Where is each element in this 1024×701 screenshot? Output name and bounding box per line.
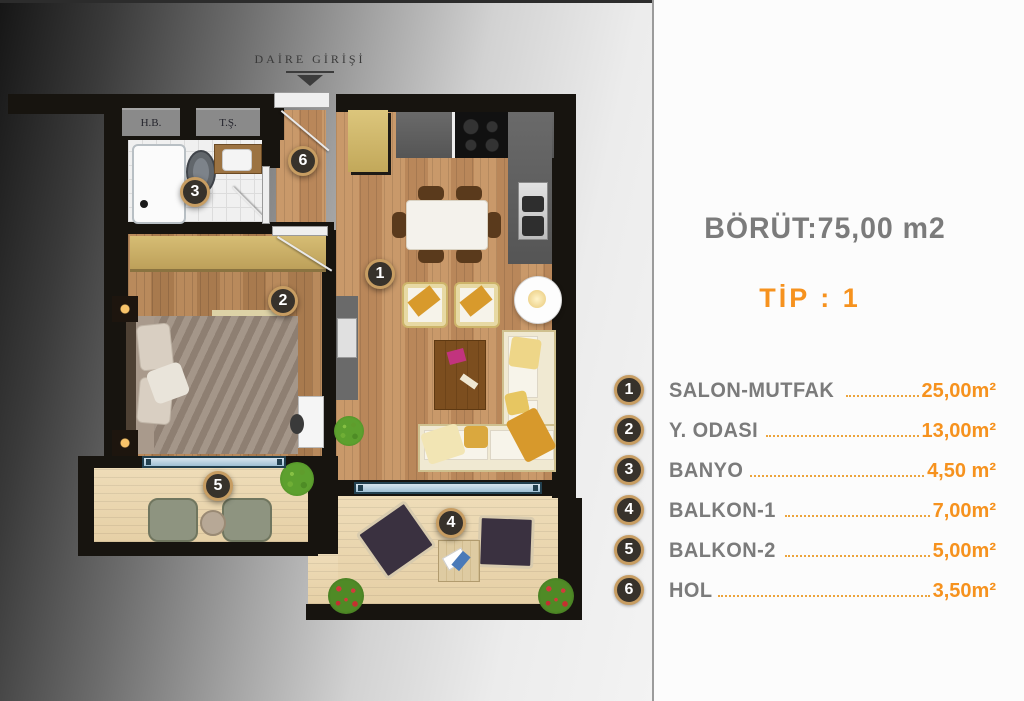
entrance-door-leaf bbox=[274, 92, 330, 108]
cooktop bbox=[452, 112, 508, 158]
legend-row: 4 BALKON-1 7,00m² bbox=[614, 490, 996, 530]
legend-label: HOL bbox=[669, 579, 713, 610]
legend-marker-2: 2 bbox=[614, 415, 644, 445]
dot-leader bbox=[846, 395, 919, 397]
wall bbox=[8, 94, 108, 114]
entrance-arrow-icon bbox=[297, 75, 323, 86]
marker-yatak-odasi: 2 bbox=[268, 286, 298, 316]
balcony-armchair bbox=[477, 515, 535, 569]
marker-balkon2: 5 bbox=[203, 471, 233, 501]
room-legend: 1 SALON-MUTFAK 25,00m² 2 Y. ODASI 13,00m… bbox=[614, 370, 996, 610]
flower-plant bbox=[328, 578, 364, 614]
legend-row: 1 SALON-MUTFAK 25,00m² bbox=[614, 370, 996, 410]
floorplan-page: DAİRE GİRİŞİ H.B. T.Ş. bbox=[0, 0, 1024, 701]
legend-area: 5,00m² bbox=[933, 540, 996, 570]
dot-leader bbox=[766, 435, 919, 437]
bedroom-door-leaf bbox=[272, 226, 328, 236]
balcony2-deck bbox=[94, 468, 308, 542]
balcony-chair bbox=[148, 498, 198, 542]
dining-chair bbox=[456, 186, 482, 201]
legend-marker-6: 6 bbox=[614, 575, 644, 605]
legend-row: 2 Y. ODASI 13,00m² bbox=[614, 410, 996, 450]
marker-banyo: 3 bbox=[180, 177, 210, 207]
nightstand bbox=[112, 430, 138, 456]
legend-marker-5: 5 bbox=[614, 535, 644, 565]
shower-tray bbox=[132, 144, 186, 224]
dining-chair bbox=[418, 186, 444, 201]
legend-row: 3 BANYO 4,50 m² bbox=[614, 450, 996, 490]
desk-chair bbox=[290, 414, 304, 434]
dot-leader bbox=[750, 475, 924, 477]
shaft-ts-label: T.Ş. bbox=[196, 108, 260, 136]
legend-area: 25,00m² bbox=[922, 380, 997, 410]
legend-label: Y. ODASI bbox=[669, 419, 758, 450]
bathroom-door-leaf bbox=[262, 166, 270, 224]
type-subtitle: TİP : 1 bbox=[660, 283, 960, 314]
dining-chair bbox=[418, 248, 444, 263]
balcony-side-table bbox=[200, 510, 226, 536]
sofa-stool bbox=[464, 426, 488, 448]
legend-area: 4,50 m² bbox=[927, 460, 996, 490]
wall bbox=[78, 542, 318, 556]
entrance-label: DAİRE GİRİŞİ bbox=[230, 52, 390, 67]
fridge bbox=[337, 318, 357, 358]
legend-area: 13,00m² bbox=[922, 420, 997, 450]
legend-label: BALKON-2 bbox=[669, 539, 776, 570]
legend-label: BANYO bbox=[669, 459, 743, 490]
legend-label: BALKON-1 bbox=[669, 499, 776, 530]
shower-drain bbox=[140, 200, 148, 208]
legend-row: 6 HOL 3,50m² bbox=[614, 570, 996, 610]
lamp-glow bbox=[528, 290, 546, 308]
hall-wardrobe bbox=[348, 110, 388, 172]
balcony-chair bbox=[222, 498, 272, 542]
sink-bowl-2 bbox=[522, 216, 544, 236]
legend-marker-3: 3 bbox=[614, 455, 644, 485]
livingroom-window bbox=[354, 482, 542, 494]
shaft-hb-label: H.B. bbox=[122, 108, 180, 136]
wall bbox=[78, 456, 94, 556]
plant bbox=[334, 416, 364, 446]
legend-label: SALON-MUTFAK bbox=[669, 379, 834, 410]
dot-leader bbox=[785, 515, 930, 517]
legend-marker-1: 1 bbox=[614, 375, 644, 405]
gross-area-title: BÖRÜT:75,00 m2 bbox=[668, 212, 982, 246]
nightstand bbox=[112, 296, 138, 322]
bedroom-wardrobe bbox=[130, 236, 326, 272]
dining-chair bbox=[456, 248, 482, 263]
legend-area: 7,00m² bbox=[933, 500, 996, 530]
legend-row: 5 BALKON-2 5,00m² bbox=[614, 530, 996, 570]
vanity-sink bbox=[222, 149, 252, 171]
dot-leader bbox=[785, 555, 930, 557]
entrance-arrow-bar bbox=[286, 71, 334, 73]
legend-area: 3,50m² bbox=[933, 580, 996, 610]
marker-hol: 6 bbox=[288, 146, 318, 176]
dining-chair bbox=[392, 212, 407, 238]
marker-salon: 1 bbox=[365, 259, 395, 289]
marker-balkon1: 4 bbox=[436, 508, 466, 538]
dot-leader bbox=[718, 595, 930, 597]
sink-bowl-1 bbox=[522, 196, 544, 212]
flower-plant bbox=[538, 578, 574, 614]
wall bbox=[104, 94, 128, 468]
sofa-pillow bbox=[508, 336, 542, 370]
bedroom-window bbox=[142, 456, 286, 468]
dining-chair bbox=[486, 212, 501, 238]
legend-marker-4: 4 bbox=[614, 495, 644, 525]
dining-table bbox=[406, 200, 488, 250]
